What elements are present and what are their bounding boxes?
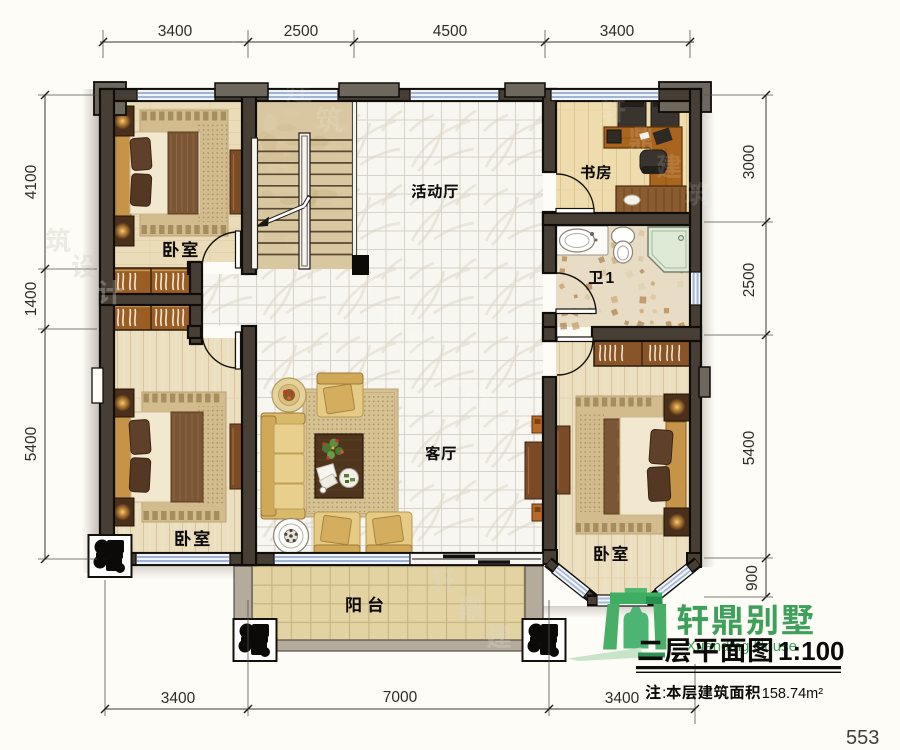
svg-text:900: 900 (744, 565, 761, 591)
svg-text:5400: 5400 (741, 430, 758, 465)
svg-text:158.74m²: 158.74m² (762, 686, 823, 702)
svg-text:1400: 1400 (23, 281, 40, 316)
svg-text:3400: 3400 (158, 23, 193, 40)
svg-text:7000: 7000 (383, 689, 418, 706)
svg-text:5400: 5400 (23, 426, 40, 461)
svg-text:3400: 3400 (600, 23, 635, 40)
svg-text:4500: 4500 (433, 23, 468, 40)
svg-text:2500: 2500 (284, 23, 319, 40)
svg-text:3400: 3400 (605, 690, 640, 707)
svg-text:2500: 2500 (741, 262, 758, 297)
svg-text::: : (662, 685, 666, 702)
svg-text:1: 1 (606, 270, 615, 287)
svg-text:553: 553 (846, 727, 879, 749)
svg-text:3400: 3400 (161, 690, 196, 707)
svg-text:4100: 4100 (23, 164, 40, 199)
svg-text:3000: 3000 (741, 144, 758, 179)
svg-text:1:100: 1:100 (778, 636, 845, 666)
